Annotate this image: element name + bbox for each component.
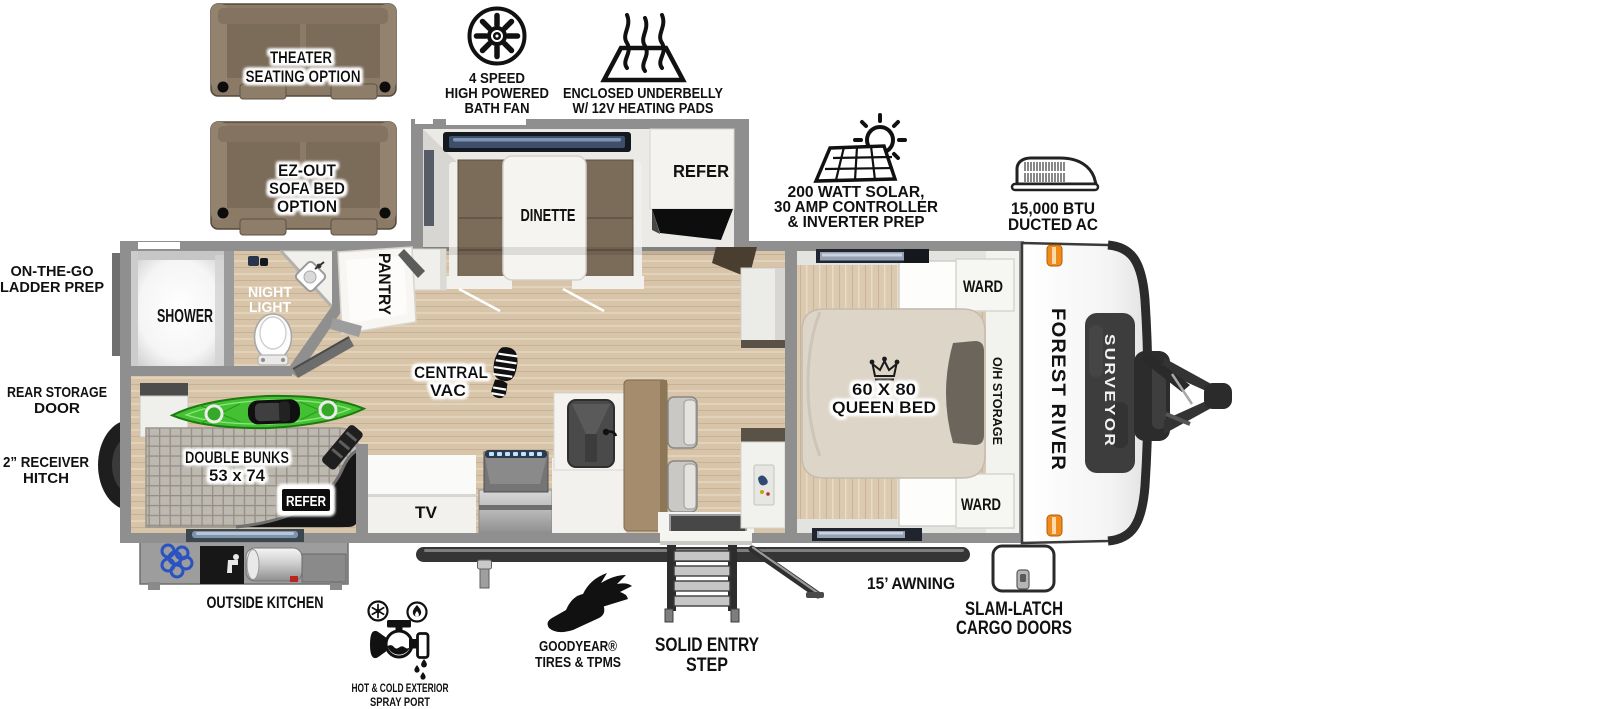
svg-text:HITCH: HITCH <box>23 470 69 487</box>
svg-text:QUEEN BED: QUEEN BED <box>832 398 936 417</box>
svg-text:53 x 74: 53 x 74 <box>209 466 266 485</box>
svg-text:SHOWER: SHOWER <box>157 306 213 326</box>
svg-text:CENTRAL: CENTRAL <box>414 364 488 382</box>
svg-text:DUCTED AC: DUCTED AC <box>1008 216 1098 234</box>
svg-text:LADDER PREP: LADDER PREP <box>0 279 104 296</box>
svg-text:60 X 80: 60 X 80 <box>852 380 916 399</box>
svg-text:OPTION: OPTION <box>277 197 337 216</box>
svg-text:W/ 12V HEATING PADS: W/ 12V HEATING PADS <box>573 100 714 117</box>
svg-text:BATH FAN: BATH FAN <box>465 100 530 117</box>
svg-text:SEATING OPTION: SEATING OPTION <box>246 67 361 86</box>
svg-text:TIRES & TPMS: TIRES & TPMS <box>535 655 621 671</box>
svg-text:OUTSIDE KITCHEN: OUTSIDE KITCHEN <box>207 594 324 612</box>
svg-text:& INVERTER PREP: & INVERTER PREP <box>788 214 925 231</box>
svg-text:SPRAY PORT: SPRAY PORT <box>370 695 431 709</box>
svg-text:WARD: WARD <box>963 278 1003 296</box>
svg-text:TV: TV <box>415 503 438 522</box>
svg-text:SOFA BED: SOFA BED <box>269 179 345 198</box>
svg-text:NIGHT: NIGHT <box>248 285 292 301</box>
svg-text:DOUBLE BUNKS: DOUBLE BUNKS <box>185 448 289 467</box>
svg-text:GOODYEAR®: GOODYEAR® <box>539 639 617 655</box>
svg-text:ON-THE-GO: ON-THE-GO <box>11 263 94 280</box>
svg-text:O/H STORAGE: O/H STORAGE <box>990 357 1005 445</box>
svg-text:FOREST RIVER: FOREST RIVER <box>1047 308 1068 471</box>
svg-text:CARGO DOORS: CARGO DOORS <box>956 618 1072 639</box>
svg-text:DOOR: DOOR <box>34 400 80 417</box>
svg-text:THEATER: THEATER <box>270 48 332 67</box>
svg-text:REFER: REFER <box>286 494 326 510</box>
svg-text:SLAM-LATCH: SLAM-LATCH <box>965 599 1063 620</box>
svg-text:SOLID ENTRY: SOLID ENTRY <box>655 635 759 656</box>
svg-text:VAC: VAC <box>430 382 466 400</box>
svg-text:PANTRY: PANTRY <box>375 253 394 316</box>
svg-text:DINETTE: DINETTE <box>521 205 576 225</box>
svg-text:15’ AWNING: 15’ AWNING <box>867 575 955 593</box>
svg-text:2” RECEIVER: 2” RECEIVER <box>3 454 89 471</box>
svg-text:SURVEYOR: SURVEYOR <box>1101 334 1118 448</box>
svg-text:LIGHT: LIGHT <box>249 300 291 316</box>
svg-text:REAR STORAGE: REAR STORAGE <box>7 384 107 401</box>
svg-text:REFER: REFER <box>673 161 729 181</box>
svg-text:EZ-OUT: EZ-OUT <box>278 161 337 180</box>
svg-text:HOT & COLD EXTERIOR: HOT & COLD EXTERIOR <box>352 681 449 695</box>
svg-text:WARD: WARD <box>961 496 1001 514</box>
svg-text:STEP: STEP <box>686 655 728 676</box>
